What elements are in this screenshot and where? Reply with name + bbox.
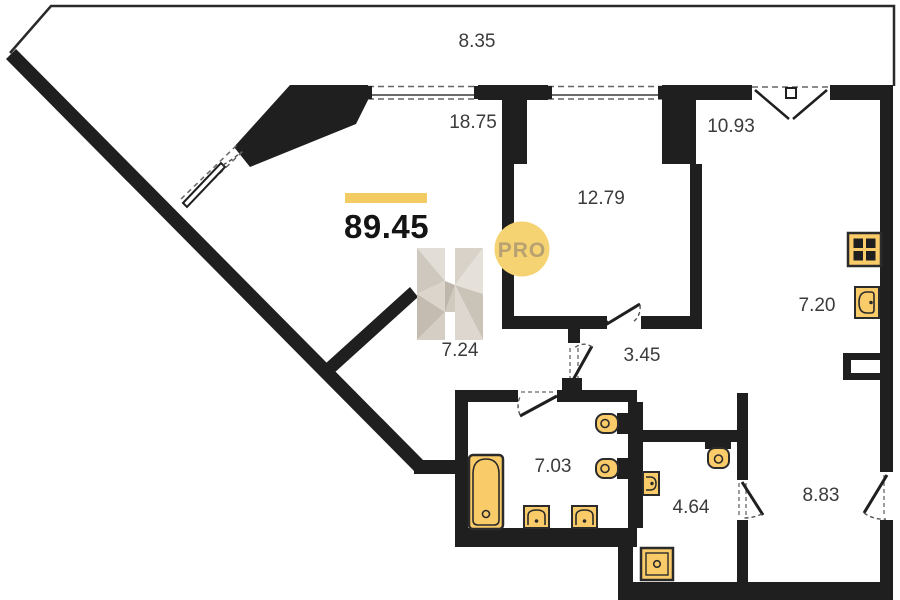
wall-bedroom-kitchen: [690, 164, 702, 329]
wall-partition-diagonal: [325, 287, 418, 374]
wall-bathroom-wc-column: [628, 402, 643, 528]
wall-diagonal-upper: [234, 85, 368, 167]
shower-tray-icon: [641, 548, 673, 580]
stove-icon: [848, 233, 881, 266]
wall-wc-top: [643, 430, 748, 442]
floor-plan-drawing: PRO 89.45 8.35 18.75 10.93 12.79 7.20 7.…: [0, 0, 900, 600]
watermark-h-icon: [417, 248, 483, 340]
wall-hung-toilet-icon: [705, 442, 731, 468]
area-label-bathroom: 7.03: [535, 456, 572, 477]
wash-basin-icon: [572, 506, 597, 528]
wall-right-upper: [880, 100, 893, 472]
interior-walls: [325, 100, 882, 582]
wash-basin-icon: [524, 506, 549, 528]
window-icon-bedroom: [548, 86, 662, 99]
balcony-door-icon: [181, 145, 243, 207]
pro-badge: PRO: [495, 222, 550, 277]
bathtub-icon: [469, 455, 503, 529]
area-label-nook: 7.24: [442, 340, 479, 361]
total-area-value: 89.45: [344, 208, 429, 245]
wall-wc-hall-lower: [737, 520, 748, 582]
wall-diagonal-main: [6, 49, 426, 473]
wall-top-pier-2: [662, 85, 752, 100]
wall-pier-bedroom-kitchen: [662, 100, 696, 164]
wall-pier-living-bedroom: [502, 100, 527, 164]
wall-corridor-top-right: [641, 316, 702, 329]
door-swing-icon-living-corridor: [570, 344, 592, 380]
area-label-corridor: 3.45: [624, 345, 661, 366]
toilet-icon: [596, 413, 629, 434]
wall-bottom-left-leg: [618, 547, 633, 600]
area-label-living: 18.75: [449, 112, 497, 133]
door-swing-icon-bedroom: [603, 304, 640, 326]
wall-bathroom-bottom: [455, 528, 637, 547]
area-label-kitchen-living: 10.93: [707, 116, 755, 137]
wall-bathroom-top-right: [557, 390, 637, 402]
toilet-icon: [596, 458, 629, 479]
shaft-left: [843, 353, 851, 380]
area-label-balcony: 8.35: [459, 31, 496, 52]
wall-diagonal-stub: [414, 460, 458, 474]
wall-corridor-left-lower: [562, 378, 582, 392]
kitchen-sink-icon: [855, 287, 879, 318]
door-swing-icon-bathroom: [518, 392, 557, 416]
wall-wc-hall-upper: [737, 393, 748, 480]
area-label-hall: 8.83: [803, 485, 840, 506]
wall-top-pier-3: [830, 85, 893, 100]
entrance-door-icon: [864, 475, 887, 519]
pro-badge-label: PRO: [498, 239, 547, 262]
french-door-icon: [752, 87, 830, 119]
total-area-accent-bar: [345, 193, 427, 203]
wall-corridor-top-left: [502, 316, 607, 329]
area-label-bedroom: 12.79: [577, 188, 625, 209]
area-label-kitchen: 7.20: [799, 295, 836, 316]
wall-corridor-left-upper: [568, 329, 580, 343]
balcony-outline: [10, 6, 894, 86]
wall-top-pier-1: [478, 85, 548, 100]
area-label-wc: 4.64: [673, 497, 710, 518]
small-sink-icon: [643, 472, 659, 495]
floor-plan: PRO 89.45 8.35 18.75 10.93 12.79 7.20 7.…: [0, 0, 900, 600]
wall-bathroom-left: [455, 390, 468, 528]
door-swing-icon-wc: [739, 482, 763, 518]
wall-bottom: [618, 582, 893, 600]
window-icon-living: [368, 86, 478, 99]
wall-bathroom-top-left: [455, 390, 518, 402]
